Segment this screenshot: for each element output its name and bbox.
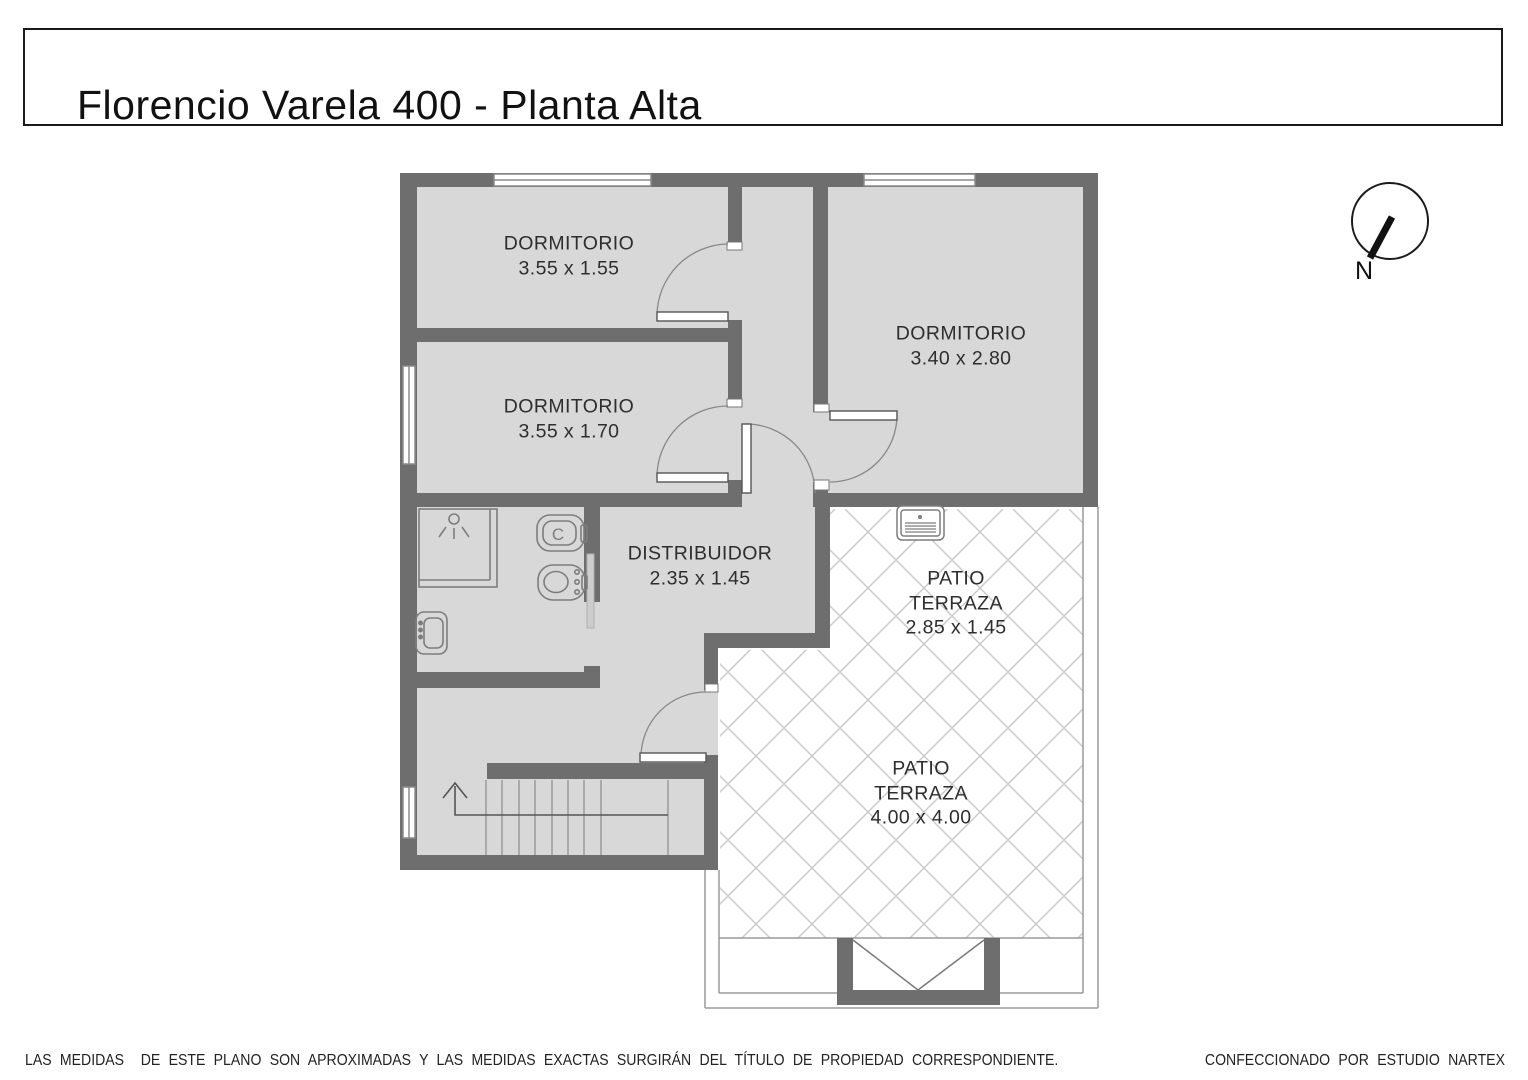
wall-bedroom2-bottom <box>417 493 740 507</box>
wall-corridor-left-c <box>728 480 742 507</box>
room-name-2: TERRAZA <box>871 781 972 806</box>
floor-plan-drawing: C <box>0 0 1528 1080</box>
north-indicator: N <box>1352 183 1428 285</box>
wall-stairs-bottom <box>400 855 718 870</box>
footer: LAS MEDIDAS DE ESTE PLANO SON APROXIMADA… <box>0 1052 1528 1076</box>
wall-corridor-left-a <box>728 187 742 242</box>
room-name: DORMITORIO <box>504 395 634 420</box>
wall-bedroom3-left-a <box>813 187 828 412</box>
toilet-letter: C <box>552 525 564 544</box>
wall-outer-right <box>1083 173 1098 507</box>
room-label-dormitorio-2: DORMITORIO 3.55 x 1.70 <box>504 395 634 444</box>
wall-stairs-top <box>487 763 718 779</box>
room-name: DISTRIBUIDOR <box>628 542 773 567</box>
footer-disclaimer: LAS MEDIDAS DE ESTE PLANO SON APROXIMADA… <box>25 1052 1058 1070</box>
room-label-distribuidor: DISTRIBUIDOR 2.35 x 1.45 <box>628 542 773 591</box>
room-name: PATIO <box>871 756 972 781</box>
room-dimensions: 4.00 x 4.00 <box>871 805 972 830</box>
window-bedroom3 <box>864 174 975 186</box>
footer-credit: CONFECCIONADO POR ESTUDIO NARTEX <box>1205 1052 1505 1070</box>
room-dimensions: 2.85 x 1.45 <box>906 615 1007 640</box>
room-dimensions: 2.35 x 1.45 <box>628 566 773 591</box>
room-label-patio-terraza-1: PATIO TERRAZA 2.85 x 1.45 <box>906 566 1007 640</box>
room-dimensions: 3.40 x 2.80 <box>896 346 1026 371</box>
wall-corridor-left-b <box>728 320 742 407</box>
wall-hall-right-b <box>704 755 718 870</box>
wall-outer-left <box>400 173 417 870</box>
room-name-2: TERRAZA <box>906 591 1007 616</box>
wall-bedroom1-bottom <box>417 328 742 342</box>
room-label-patio-terraza-2: PATIO TERRAZA 4.00 x 4.00 <box>871 756 972 830</box>
window-bedroom1 <box>494 174 651 186</box>
door-bathroom-sliding <box>587 554 594 628</box>
room-name: DORMITORIO <box>504 232 634 257</box>
window-bedroom2 <box>403 366 415 464</box>
wall-bathroom-bottom <box>417 672 598 688</box>
north-label: N <box>1355 257 1373 285</box>
wall-distribuidor-step <box>704 633 830 648</box>
room-name: PATIO <box>906 566 1007 591</box>
wall-bedroom3-bottom <box>815 493 1098 507</box>
floor-plan-page: Florencio Varela 400 - Planta Alta <box>0 0 1528 1080</box>
north-needle <box>1370 217 1392 258</box>
laundry-tub <box>897 506 944 540</box>
room-dimensions: 3.55 x 1.55 <box>504 256 634 281</box>
room-dimensions: 3.55 x 1.70 <box>504 419 634 444</box>
wall-bathroom-corner <box>584 666 600 688</box>
room-label-dormitorio-3: DORMITORIO 3.40 x 2.80 <box>896 322 1026 371</box>
wall-patio-left <box>815 507 830 648</box>
window-stairs <box>403 787 415 838</box>
room-label-dormitorio-1: DORMITORIO 3.55 x 1.55 <box>504 232 634 281</box>
room-name: DORMITORIO <box>896 322 1026 347</box>
